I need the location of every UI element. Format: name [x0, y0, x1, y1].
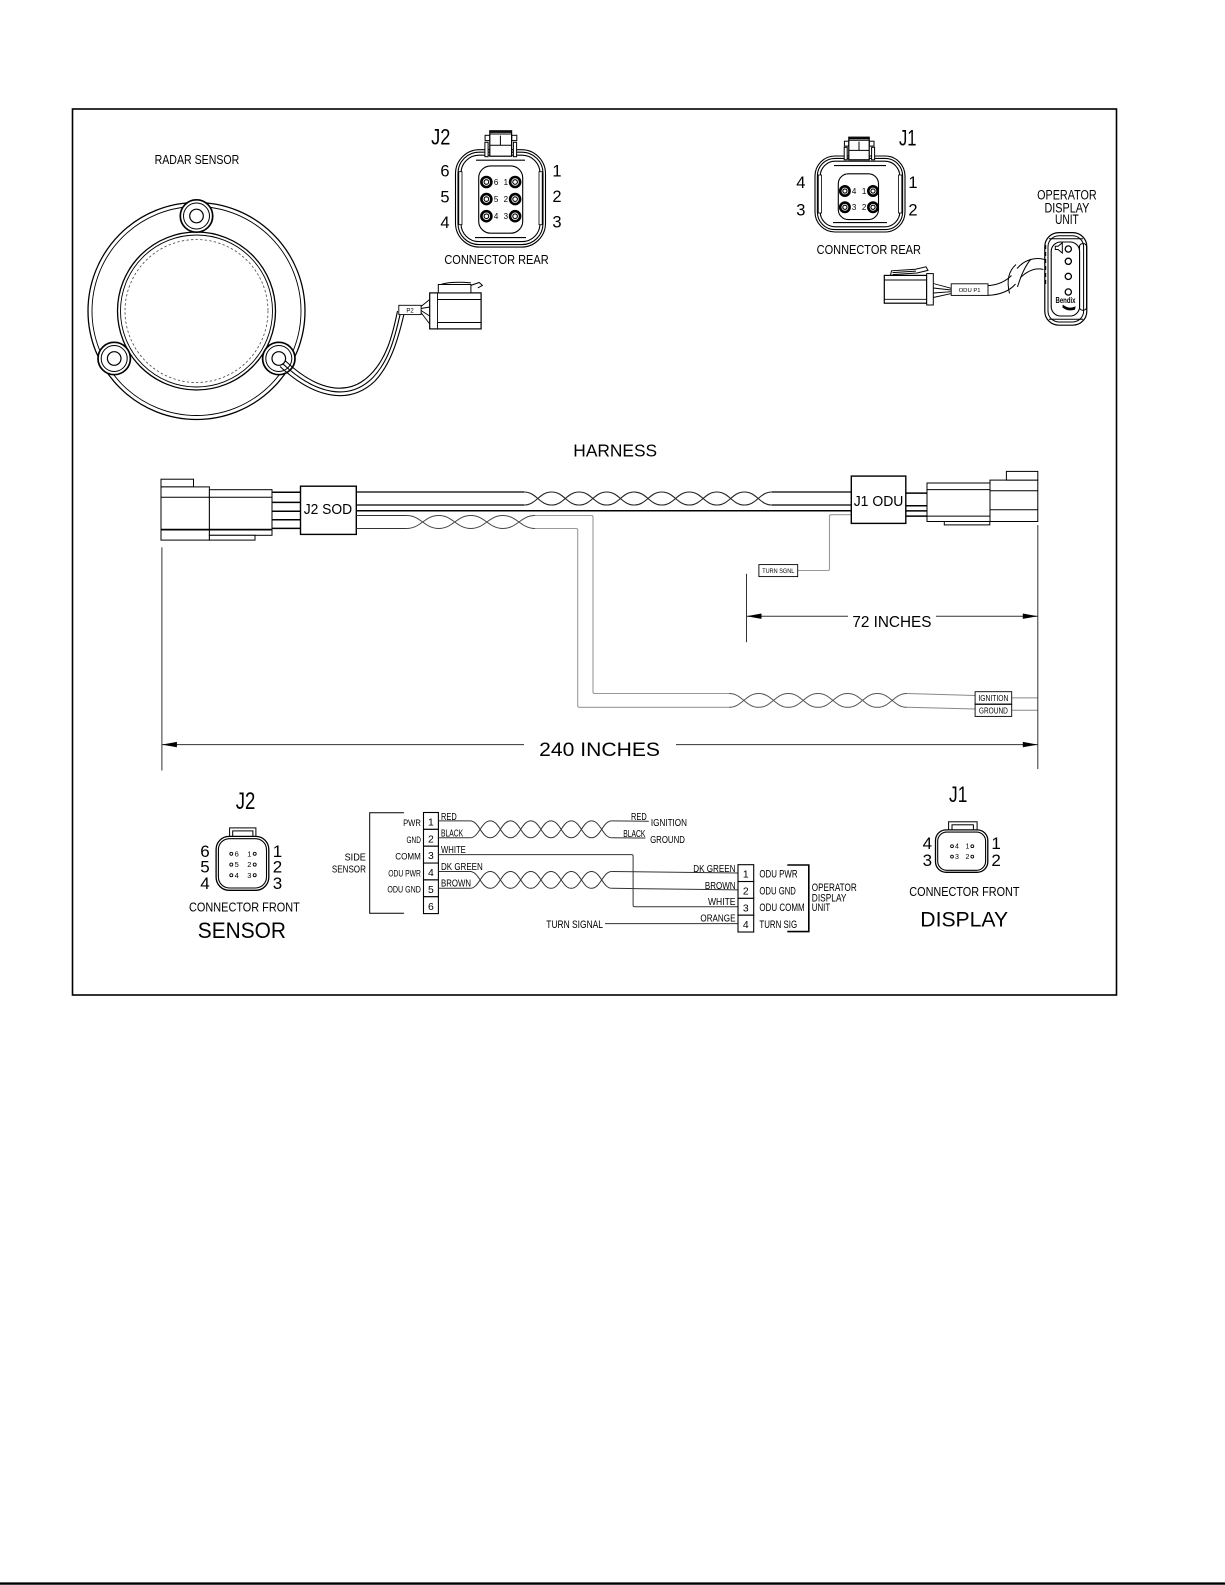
svg-text:ORANGE: ORANGE: [700, 914, 735, 925]
svg-text:J1 ODU: J1 ODU: [854, 493, 904, 510]
svg-text:BROWN: BROWN: [441, 879, 471, 890]
svg-text:2: 2: [247, 860, 251, 869]
svg-text:2: 2: [552, 188, 561, 206]
svg-text:UNIT: UNIT: [1055, 212, 1079, 227]
svg-text:4: 4: [852, 187, 857, 196]
svg-text:1: 1: [965, 844, 969, 851]
svg-text:4: 4: [955, 844, 959, 851]
svg-text:TURN SGNL: TURN SGNL: [762, 568, 794, 575]
svg-text:4: 4: [200, 874, 209, 893]
svg-text:3: 3: [852, 203, 857, 212]
svg-text:3: 3: [923, 851, 932, 870]
svg-text:2: 2: [965, 854, 969, 861]
svg-text:1: 1: [862, 187, 867, 196]
svg-text:WHITE: WHITE: [441, 845, 466, 856]
svg-text:CONNECTOR REAR: CONNECTOR REAR: [444, 252, 548, 267]
svg-text:J1: J1: [949, 782, 967, 807]
svg-text:1: 1: [247, 849, 251, 858]
svg-text:IGNITION: IGNITION: [651, 818, 687, 829]
svg-text:P2: P2: [406, 308, 414, 314]
svg-text:ODU GND: ODU GND: [387, 885, 421, 895]
svg-text:4: 4: [440, 214, 449, 232]
svg-text:4: 4: [235, 871, 239, 880]
svg-text:4: 4: [796, 174, 805, 192]
svg-text:2: 2: [908, 202, 917, 220]
svg-text:2: 2: [743, 886, 749, 897]
svg-text:IGNITION: IGNITION: [978, 693, 1008, 703]
svg-text:CONNECTOR REAR: CONNECTOR REAR: [817, 242, 921, 257]
svg-text:BLACK: BLACK: [623, 829, 645, 840]
svg-text:BLACK: BLACK: [441, 829, 463, 840]
svg-text:J1: J1: [899, 126, 917, 151]
svg-text:5: 5: [428, 885, 434, 896]
svg-text:SENSOR: SENSOR: [198, 918, 286, 943]
svg-text:5: 5: [235, 860, 239, 869]
svg-text:HARNESS: HARNESS: [573, 440, 657, 460]
svg-text:2: 2: [862, 203, 867, 212]
svg-text:CONNECTOR FRONT: CONNECTOR FRONT: [909, 884, 1019, 899]
svg-text:3: 3: [247, 871, 251, 880]
svg-text:DISPLAY: DISPLAY: [920, 906, 1008, 931]
svg-text:6: 6: [494, 178, 499, 187]
svg-text:2: 2: [504, 195, 509, 204]
svg-text:ODU PWR: ODU PWR: [388, 868, 421, 878]
svg-text:SIDE: SIDE: [345, 853, 366, 864]
svg-text:GROUND: GROUND: [979, 706, 1008, 716]
svg-text:J2: J2: [431, 125, 450, 150]
svg-text:4: 4: [743, 920, 749, 931]
svg-text:GROUND: GROUND: [650, 835, 685, 846]
svg-text:SENSOR: SENSOR: [332, 865, 366, 876]
svg-text:J2: J2: [236, 789, 256, 815]
svg-text:COMM: COMM: [395, 852, 421, 862]
svg-text:3: 3: [552, 214, 561, 232]
svg-text:TURN SIGNAL: TURN SIGNAL: [546, 919, 603, 931]
svg-text:RED: RED: [441, 812, 457, 823]
svg-text:4: 4: [494, 212, 499, 221]
svg-text:6: 6: [440, 163, 449, 181]
svg-text:BROWN: BROWN: [705, 881, 736, 892]
svg-text:PWR: PWR: [403, 818, 421, 828]
svg-text:3: 3: [796, 202, 805, 220]
svg-text:J2 SOD: J2 SOD: [304, 501, 353, 518]
svg-text:RADAR SENSOR: RADAR SENSOR: [155, 153, 240, 167]
svg-text:CONNECTOR FRONT: CONNECTOR FRONT: [189, 899, 300, 914]
svg-text:ODU COMM: ODU COMM: [759, 902, 804, 914]
svg-text:Bendix: Bendix: [1056, 296, 1077, 305]
svg-text:1: 1: [552, 163, 561, 181]
svg-text:1: 1: [504, 178, 509, 187]
svg-text:5: 5: [494, 195, 499, 204]
svg-text:6: 6: [428, 902, 434, 913]
svg-text:3: 3: [743, 903, 749, 914]
svg-text:ODU PWR: ODU PWR: [759, 869, 797, 881]
svg-text:DK GREEN: DK GREEN: [441, 862, 483, 873]
svg-text:WHITE: WHITE: [708, 897, 736, 908]
svg-text:1: 1: [908, 174, 917, 192]
svg-text:3: 3: [504, 212, 509, 221]
svg-text:GND: GND: [407, 835, 422, 845]
svg-text:3: 3: [428, 851, 434, 862]
svg-text:72 INCHES: 72 INCHES: [852, 614, 931, 631]
svg-text:RED: RED: [631, 812, 647, 823]
svg-text:1: 1: [743, 870, 749, 881]
svg-text:3: 3: [273, 874, 282, 893]
svg-text:2: 2: [428, 834, 434, 845]
svg-text:5: 5: [440, 189, 449, 207]
svg-text:1: 1: [428, 818, 434, 829]
svg-text:UNIT: UNIT: [812, 902, 831, 914]
svg-text:240 INCHES: 240 INCHES: [539, 740, 660, 761]
svg-text:4: 4: [428, 868, 434, 879]
svg-text:TURN SIG: TURN SIG: [759, 919, 797, 931]
svg-text:DK GREEN: DK GREEN: [693, 864, 735, 875]
svg-text:3: 3: [955, 854, 959, 861]
svg-text:2: 2: [991, 851, 1000, 870]
svg-text:ODU GND: ODU GND: [759, 885, 796, 897]
svg-text:ODU P1: ODU P1: [959, 288, 981, 294]
svg-text:6: 6: [235, 849, 239, 858]
